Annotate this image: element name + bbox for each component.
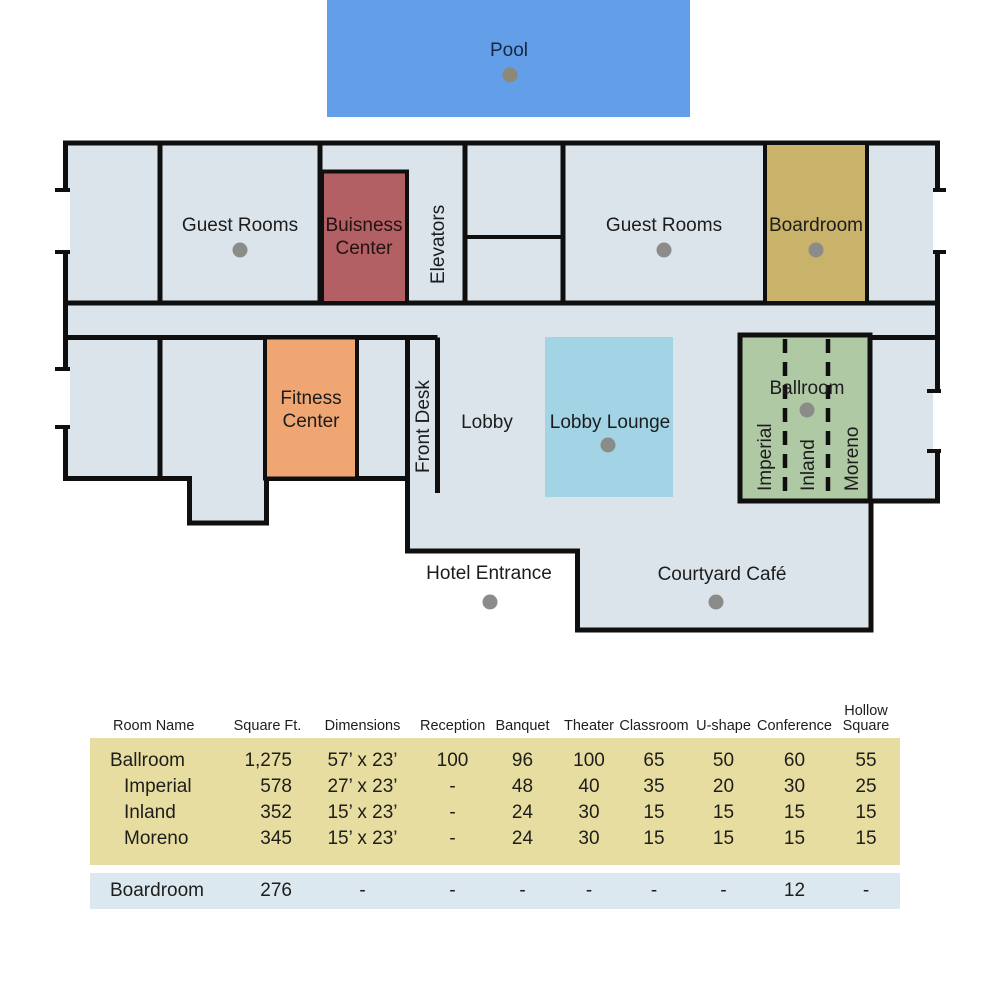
lobby-lounge-dot	[601, 438, 616, 453]
elevators-label: Elevators	[428, 205, 449, 284]
cell: 15’ x 23’	[305, 800, 420, 826]
ballroom-section-moreno-label: Moreno	[842, 427, 863, 491]
room-spec-table: Room Name Square Ft. Dimensions Receptio…	[90, 692, 900, 909]
boardroom-dot	[809, 243, 824, 258]
business-center-label-line2: Center	[335, 238, 393, 259]
courtyard-cafe-label: Courtyard Café	[658, 564, 787, 585]
cell: 40	[560, 774, 618, 800]
header-theater: Theater	[560, 719, 618, 734]
boardroom-block: Boardroom 276 - - - - - - 12 -	[90, 873, 900, 909]
cell: 55	[832, 748, 900, 774]
table-row-imperial: Imperial 578 27’ x 23’ - 48 40 35 20 30 …	[90, 774, 900, 800]
table-row-boardroom: Boardroom 276 - - - - - - 12 -	[90, 873, 900, 909]
guest-rooms-right-label: Guest Rooms	[606, 215, 722, 236]
cell: 578	[230, 774, 305, 800]
spec-table-header-row: Room Name Square Ft. Dimensions Receptio…	[90, 692, 900, 738]
header-reception: Reception	[420, 719, 485, 734]
cell: Moreno	[90, 826, 230, 852]
header-hollow-square: Hollow Square	[832, 704, 900, 734]
meeting-rooms-block: Ballroom 1,275 57’ x 23’ 100 96 100 65 5…	[90, 738, 900, 865]
hotel-entrance-dot	[483, 595, 498, 610]
hotel-floorplan-page: Pool	[0, 0, 990, 1000]
ballroom-dot	[800, 403, 815, 418]
cell: 15’ x 23’	[305, 826, 420, 852]
guest-rooms-right-dot	[657, 243, 672, 258]
cell: 25	[832, 774, 900, 800]
header-banquet: Banquet	[485, 719, 560, 734]
header-square-ft: Square Ft.	[230, 719, 305, 734]
cell: Ballroom	[90, 748, 230, 774]
cell: -	[420, 774, 485, 800]
cell: 50	[690, 748, 757, 774]
cell: Inland	[90, 800, 230, 826]
table-row-moreno: Moreno 345 15’ x 23’ - 24 30 15 15 15 15	[90, 826, 900, 852]
cell: Boardroom	[90, 873, 230, 909]
cell: 96	[485, 748, 560, 774]
pool-label: Pool	[490, 40, 528, 61]
front-desk-label: Front Desk	[413, 380, 434, 473]
cell: 12	[757, 873, 832, 909]
cell: 15	[618, 826, 690, 852]
cell: -	[560, 873, 618, 909]
lobby-label: Lobby	[461, 412, 513, 433]
cell: 276	[230, 873, 305, 909]
cell: -	[485, 873, 560, 909]
cell: -	[420, 873, 485, 909]
pool-marker-dot	[503, 68, 518, 83]
guest-rooms-left-label: Guest Rooms	[182, 215, 298, 236]
ballroom-section-imperial-label: Imperial	[755, 423, 776, 491]
cell: 30	[757, 774, 832, 800]
cell: 15	[832, 800, 900, 826]
cell: 30	[560, 826, 618, 852]
ballroom-section-inland-label: Inland	[798, 439, 819, 491]
header-dimensions: Dimensions	[305, 719, 420, 734]
cell: 35	[618, 774, 690, 800]
cell: 100	[560, 748, 618, 774]
cell: Imperial	[90, 774, 230, 800]
cell: -	[832, 873, 900, 909]
cell: 15	[757, 800, 832, 826]
cell: 24	[485, 800, 560, 826]
header-classroom: Classroom	[618, 719, 690, 734]
cell: 20	[690, 774, 757, 800]
cell: 24	[485, 826, 560, 852]
business-center-label-line1: Buisness	[325, 215, 402, 236]
ballroom-label: Ballroom	[770, 378, 845, 399]
cell: 65	[618, 748, 690, 774]
header-room-name: Room Name	[90, 719, 230, 734]
table-row-ballroom: Ballroom 1,275 57’ x 23’ 100 96 100 65 5…	[90, 748, 900, 774]
cell: 27’ x 23’	[305, 774, 420, 800]
cell: 1,275	[230, 748, 305, 774]
cell: 57’ x 23’	[305, 748, 420, 774]
header-conference: Conference	[757, 719, 832, 734]
cell: 100	[420, 748, 485, 774]
cell: -	[420, 826, 485, 852]
cell: -	[305, 873, 420, 909]
cell: 15	[618, 800, 690, 826]
cell: -	[690, 873, 757, 909]
cell: 60	[757, 748, 832, 774]
cell: 15	[690, 826, 757, 852]
cell: 15	[757, 826, 832, 852]
cell: -	[618, 873, 690, 909]
floorplan-diagram: Pool	[0, 0, 990, 665]
lobby-lounge-label: Lobby Lounge	[550, 412, 670, 433]
cell: 15	[832, 826, 900, 852]
cell: 15	[690, 800, 757, 826]
boardroom-label: Boardroom	[769, 215, 863, 236]
cell: 352	[230, 800, 305, 826]
guest-rooms-left-dot	[233, 243, 248, 258]
fitness-center-label-line2: Center	[282, 411, 340, 432]
cell: 345	[230, 826, 305, 852]
cell: -	[420, 800, 485, 826]
header-u-shape: U-shape	[690, 719, 757, 734]
cell: 30	[560, 800, 618, 826]
fitness-center-label-line1: Fitness	[280, 388, 341, 409]
table-row-inland: Inland 352 15’ x 23’ - 24 30 15 15 15 15	[90, 800, 900, 826]
cell: 48	[485, 774, 560, 800]
hotel-entrance-label: Hotel Entrance	[426, 563, 552, 584]
courtyard-cafe-dot	[709, 595, 724, 610]
